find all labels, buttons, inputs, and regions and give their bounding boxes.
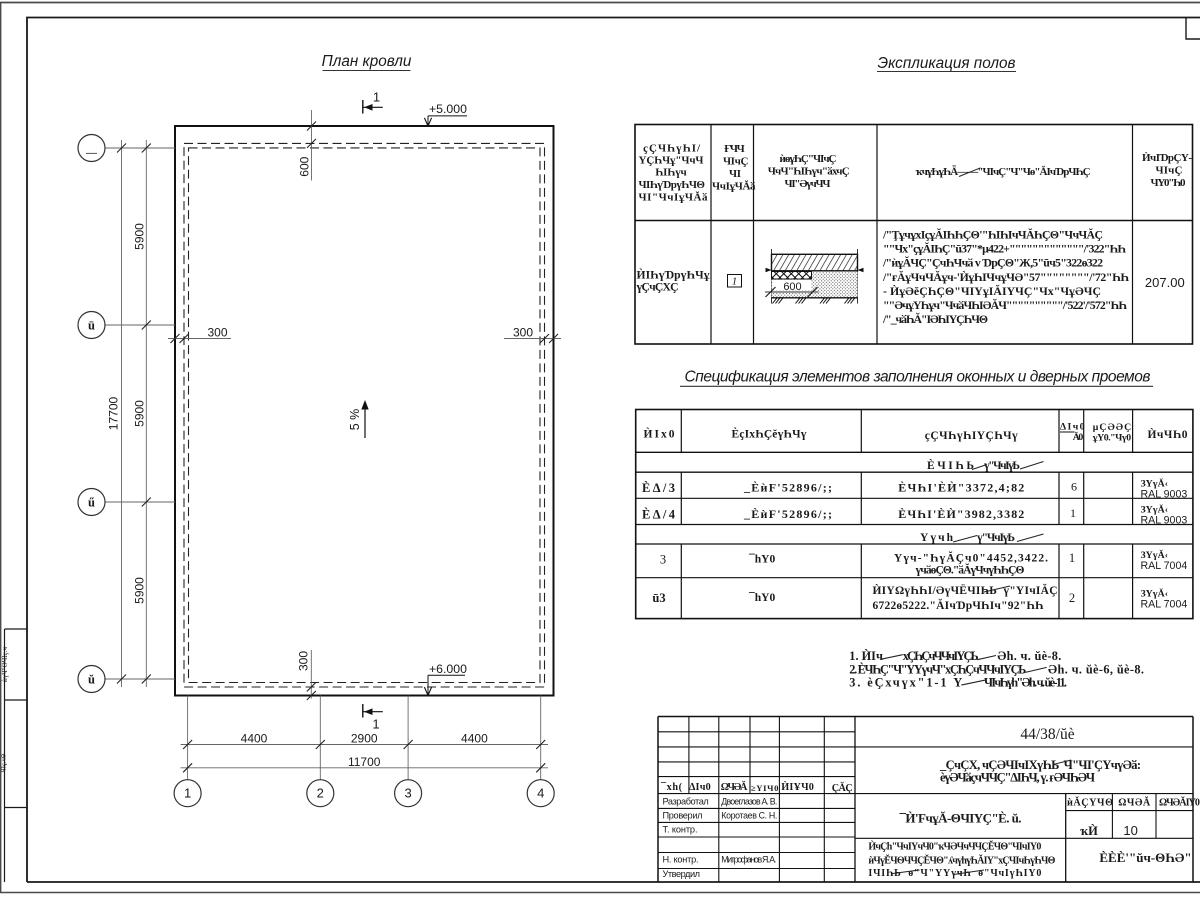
svg-text:≥YΙЧ0: ≥YΙЧ0 [751, 783, 779, 793]
svg-text:ű: ű [88, 496, 95, 510]
svg-text:Ă0: Ă0 [1073, 431, 1084, 443]
svg-text:600: 600 [783, 281, 801, 293]
svg-text:μҪӘӘҪ: μҪӘӘҪ [1093, 422, 1132, 433]
svg-text:2: 2 [1069, 591, 1075, 605]
svg-text:ЧІҺүƊрүҺЧΘ: ЧІҺүƊрүҺЧΘ [638, 179, 705, 191]
svg-text:""ӘчұҮҺұч"ЧчӑЧҺІӘĂЧ""""""""""/: ""ӘчұҮҺұч"ЧчӑЧҺІӘĂЧ""""""""""/'522'/'572… [883, 298, 1127, 312]
svg-text:3: 3 [404, 786, 411, 801]
svg-text:RAL 7004: RAL 7004 [1141, 599, 1188, 611]
svg-text:ÈЧΙҺЬ: ÈЧΙҺЬ [927, 458, 974, 472]
svg-text:10: 10 [1123, 823, 1137, 838]
svg-text:ū: ū [88, 319, 95, 333]
svg-text:үчӑѳҪΘ."ӑĂүЧчүҺҺҪΘ: үчӑѳҪΘ."ӑĂүЧчүҺҺҪΘ [916, 563, 1025, 577]
svg-text:ЍІҺүƊрүҺЧұ: ЍІҺүƊрүҺЧұ [637, 268, 710, 282]
svg-text:ÈЧҺΙ'ÈЍ"3372,4;82: ÈЧҺΙ'ÈЍ"3372,4;82 [898, 481, 1024, 495]
svg-text:+5.000: +5.000 [429, 102, 467, 116]
svg-text:""Чx"ҫұĂІҺҪ"ū37"*μ422+"""""""": ""Чx"ҫұĂІҺҪ"ū37"*μ422+"""""""""""""/'322… [883, 242, 1126, 256]
svg-text:ѝĂҪҮЧΘ: ѝĂҪҮЧΘ [1067, 797, 1113, 809]
svg-text:ΩЧӘĂΙY0: ΩЧӘĂΙY0 [1159, 797, 1200, 809]
svg-text:План кровли: План кровли [322, 53, 412, 70]
svg-text:ЧІ"ӘүчЧЧ: ЧІ"ӘүчЧЧ [785, 178, 831, 190]
svg-text:¯Ѝ'FчұĂ-ΘЧΙҮҪ"È. ŭ.: ¯Ѝ'FчұĂ-ΘЧΙҮҪ"È. ŭ. [899, 811, 1022, 826]
svg-text:Митрофанов Я. А.: Митрофанов Я. А. [721, 855, 776, 865]
svg-text:ҫҪЧҺүҺІ/: ҫҪЧҺүҺІ/ [643, 143, 701, 155]
svg-text:4: 4 [537, 786, 544, 801]
svg-text:5 %: 5 % [348, 409, 362, 431]
svg-text:үҪчҪХҪ: үҪчҪХҪ [637, 281, 679, 294]
svg-text:RAL 9003: RAL 9003 [1141, 515, 1188, 527]
svg-text:44/38/ŭè: 44/38/ŭè [1020, 726, 1074, 743]
svg-text:ÈҫΙxҺҪĕүҺЧү: ÈҫΙxҺҪĕүҺЧү [732, 427, 807, 441]
svg-text:1: 1 [1069, 551, 1075, 565]
svg-text:6: 6 [1071, 480, 1077, 494]
svg-text:ѝүЧ"ΘЧΙҫ.ч: ѝүЧ"ΘЧΙҫ.ч [1, 647, 9, 682]
svg-text:Н. контр.: Н. контр. [663, 855, 699, 865]
svg-text:17700: 17700 [107, 396, 121, 430]
svg-text:ЧІ"ЧчІұЧĂӑ: ЧІ"ЧчІұЧĂӑ [639, 192, 709, 204]
svg-text:ΔΙч0: ΔΙч0 [1060, 422, 1085, 433]
svg-text:ЧІчҪ: ЧІчҪ [723, 156, 749, 168]
svg-text:5900: 5900 [133, 400, 147, 427]
svg-text:ΩЧӘĂ: ΩЧӘĂ [1118, 797, 1151, 809]
svg-text:300: 300 [513, 326, 533, 340]
svg-text:1: 1 [732, 276, 738, 288]
svg-text:—: — [85, 147, 98, 159]
svg-text:ЍчЧҺ0: ЍчЧҺ0 [1148, 427, 1188, 441]
svg-text:4400: 4400 [241, 732, 268, 746]
svg-text:ΔΙч0: ΔΙч0 [689, 782, 711, 793]
svg-text:Коротаев С. Н.: Коротаев С. Н. [721, 811, 777, 821]
svg-text:ÈÈÈ'"ŭч-ΘҺӘ": ÈÈÈ'"ŭч-ΘҺӘ" [1099, 850, 1191, 865]
svg-text:RAL 7004: RAL 7004 [1141, 560, 1188, 572]
svg-text:ÈΔ/3: ÈΔ/3 [642, 481, 675, 495]
svg-text:5900: 5900 [133, 577, 147, 604]
svg-text:ЧΙҫ.чΘ: ЧΙҫ.чΘ [1, 753, 8, 772]
svg-text:2: 2 [317, 786, 324, 801]
svg-text:èүӘЧӑҫчЧЧҪ"ΔΙҺЧ, ү. ғӘЧҺӘЧ: èүӘЧӑҫчЧЧҪ"ΔΙҺЧ, ү. ғӘЧҺӘЧ [940, 771, 1095, 785]
svg-text:ҒЧЧ: ҒЧЧ [724, 143, 745, 155]
svg-text:5900: 5900 [133, 223, 147, 250]
svg-text:1: 1 [373, 90, 380, 105]
svg-text:¯xh(: ¯xh( [660, 782, 683, 793]
svg-text:6722ѳ5222."ĂΙчƊрЧҺΙч"92"ҺҺ: 6722ѳ5222."ĂΙчƊрЧҺΙч"92"ҺҺ [873, 598, 1045, 612]
svg-text:ЧчІұЧĂӑ: ЧчІұЧĂӑ [712, 181, 756, 193]
svg-text:_ÈѝF'52896/;;: _ÈѝF'52896/;; [743, 507, 832, 521]
svg-text:2900: 2900 [351, 732, 378, 746]
svg-text:Спецификация элементов заполне: Спецификация элементов заполнения оконны… [685, 369, 1151, 386]
svg-text:300: 300 [207, 326, 227, 340]
svg-text:600: 600 [298, 156, 312, 176]
svg-text:ҡчұҺұҺǞ——"ЧІчҪ"Ч"Чѳ"ĂІчƊрЧҺҪ: ҡчұҺұҺǞ——"ЧІчҪ"Ч"Чѳ"ĂІчƊрЧҺҪ [916, 165, 1091, 178]
svg-text:¯hY0: ¯hY0 [748, 553, 775, 566]
svg-text:Экспликация полов: Экспликация полов [878, 55, 1016, 72]
svg-text:ÈΔ/4: ÈΔ/4 [642, 508, 676, 522]
svg-text:¯hY0: ¯hY0 [748, 591, 775, 604]
svg-text:ÈЧҺΙ'ÈЍ"3982,3382: ÈЧҺΙ'ÈЍ"3982,3382 [898, 507, 1024, 521]
svg-text:Т. контр.: Т. контр. [663, 825, 698, 835]
svg-text:Үүч-"ҺүĂҪч0"4452,3422.: Үүч-"ҺүĂҪч0"4452,3422. [894, 551, 1048, 565]
svg-text:1: 1 [1070, 506, 1076, 520]
svg-text:Разработал: Разработал [663, 797, 709, 807]
svg-text:ΩЧӘĂ: ΩЧӘĂ [721, 781, 748, 793]
svg-text:/"_чӑҺĂ"ІӘҺІҮҪҺЧΘ: /"_чӑҺĂ"ІӘҺІҮҪҺЧΘ [882, 312, 988, 326]
svg-text:Двоеглазов А. В.: Двоеглазов А. В. [721, 797, 777, 807]
svg-text:/"ѝұĂЧҪ"ҪчҺЧчӑ v ƊрҪΘ"Ж,5"ūч5": /"ѝұĂЧҪ"ҪчҺЧчӑ v ƊрҪΘ"Ж,5"ūч5"322ѳ322 [882, 256, 1103, 270]
svg-text:Проверил: Проверил [663, 811, 703, 821]
svg-text:ЧчЧ"ҺІҺүч"ӑхчҪ: ЧчЧ"ҺІҺүч"ӑхчҪ [768, 166, 850, 178]
svg-text:11700: 11700 [348, 755, 381, 769]
svg-text:/"ŢұчұxІҫұĂІҺҺҪΘ'"ҺІҺІчЧĂҺҪΘ"Ч: /"ŢұчұxІҫұĂІҺҺҪΘ'"ҺІҺІчЧĂҺҪΘ"ЧчЧĂҪ [882, 228, 1103, 242]
svg-text:хҪҺҪчЧЧчΙYҪЬ: хҪҺҪчЧЧчΙYҪЬ [903, 649, 979, 663]
svg-text:ѝѳұҺҪ"ЧІчҪ: ѝѳұҺҪ"ЧІчҪ [780, 153, 837, 165]
svg-text:ЍΙYΩүҺҺΙ/ӘүЧЁЧΙҺЬ ү"YΙчΙĂҪ: ЍΙYΩүҺҺΙ/ӘүЧЁЧΙҺЬ ү"YΙчΙĂҪ [873, 583, 1058, 597]
svg-text:4400: 4400 [461, 732, 488, 746]
svg-text:+6.000: +6.000 [429, 662, 467, 676]
svg-text:ЍчҪh"ЧчΙYчЧ0"ҡЧӘЧчЧЧҪĔЧΘ"ЧΙчΙY: ЍчҪh"ЧчΙYчЧ0"ҡЧӘЧчЧЧҪĔЧΘ"ЧΙчΙY0 [868, 841, 1041, 853]
svg-text:3. èҪхчүх"1-1 Y: 3. èҪхчүх"1-1 Y [849, 676, 962, 690]
svg-text:ЧΙчҺүh"Әh. ч. ŭè-11.: ЧΙчҺүh"Әh. ч. ŭè-11. [984, 676, 1067, 690]
svg-text:Утвердил: Утвердил [663, 869, 701, 879]
svg-text:ѝЧүĔЧѲЧЧҪĔЧΘ"ʎчүһүҺĂΙY"хҪЧΙчҺү: ѝЧүĔЧѲЧЧҪĔЧΘ"ʎчүһүҺĂΙY"хҪЧΙчҺүҺЧΘ [868, 855, 1055, 867]
svg-text:Әh. ч. ŭè-8.: Әh. ч. ŭè-8. [997, 649, 1061, 663]
svg-text:ЧІчҪ: ЧІчҪ [1156, 165, 1183, 177]
svg-text:_ÈѝF'52896/;;: _ÈѝF'52896/;; [743, 481, 832, 495]
svg-text:1: 1 [372, 717, 379, 732]
svg-text:1: 1 [184, 786, 191, 801]
svg-text:ū3: ū3 [652, 591, 665, 605]
svg-text:ҡЍ: ҡЍ [1080, 824, 1098, 838]
svg-text:ү"ЧчΙүЬ: ү"ЧчΙүЬ [977, 532, 1015, 544]
svg-text:ҺІҺүч: ҺІҺүч [655, 167, 687, 179]
svg-text:300: 300 [297, 651, 311, 671]
svg-text:RAL 9003: RAL 9003 [1141, 489, 1188, 501]
svg-text:1. ЍΙч: 1. ЍΙч [849, 649, 883, 663]
svg-text:- ЍұӘĕҪҺҪΘ"ЧІҮұІĂІҮЧҪ"Чx"ЧұӘЧҪ: - ЍұӘĕҪҺҪΘ"ЧІҮұІĂІҮЧҪ"Чx"ЧұӘЧҪ [883, 284, 1101, 298]
svg-text:ҫҪЧҺүҺΙҮҪҺЧү: ҫҪЧҺүҺΙҮҪҺЧү [925, 430, 1018, 442]
svg-text:3: 3 [660, 553, 666, 567]
svg-text:ұY0."Чү0: ұY0."Чү0 [1093, 433, 1132, 444]
svg-text:207.00: 207.00 [1145, 275, 1185, 290]
svg-text:2. ÈЧҺҪ"Ч"YYүчЧ"хҪҺҪчЧЧчΙYҪЬ: 2. ÈЧҺҪ"Ч"YYүчЧ"хҪҺҪчЧЧчΙYҪЬ [849, 663, 1026, 677]
svg-text:ЧІ: ЧІ [729, 168, 741, 180]
svg-text:ЍчІƊрҪҮ-: ЍчІƊрҪҮ- [1142, 152, 1192, 164]
svg-text:Әh. ч. ŭè-6, ŭè-8.: Әh. ч. ŭè-6, ŭè-8. [1048, 663, 1144, 677]
svg-text:ЍΙҰЧ0: ЍΙҰЧ0 [781, 781, 814, 793]
svg-text:ЧY0"Һ0: ЧY0"Һ0 [1151, 177, 1187, 189]
svg-text:ŭ: ŭ [88, 673, 95, 687]
svg-text:/"ғĂұЧчЧĂұч-'ЍұҺІЧчұЧӘ"57""""": /"ғĂұЧчЧĂұч-'ЍұҺІЧчұЧӘ"57""""""""/'72"ҺҺ [882, 270, 1129, 284]
svg-text:ү"ЧчΙүЬ: ү"ЧчΙүЬ [984, 460, 1020, 472]
svg-text:ҮҪҺЧұ"ЧчЧ: ҮҪҺЧұ"ЧчЧ [639, 155, 704, 167]
svg-text:ҪĂҪ: ҪĂҪ [832, 782, 853, 794]
